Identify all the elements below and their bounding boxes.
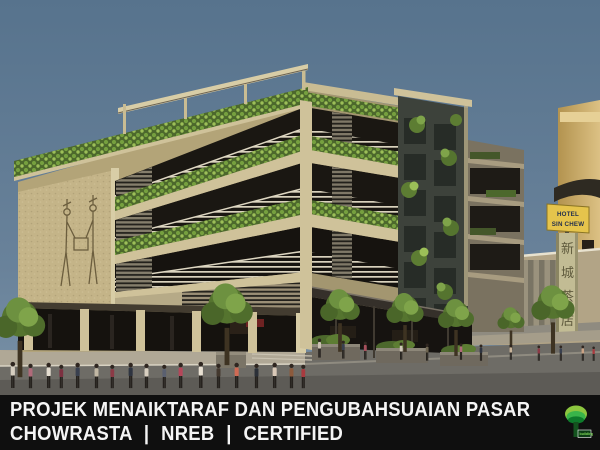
mural-wall [18, 168, 119, 308]
svg-text:城: 城 [561, 266, 574, 281]
hotel-sign-line1: HOTEL [557, 211, 579, 218]
architectural-rendering: HOTEL SIN CHEW 新 城 茶 店 [0, 0, 600, 450]
hotel-sign-line2: SIN CHEW [552, 221, 585, 228]
rendering-slide: HOTEL SIN CHEW 新 城 茶 店 [0, 0, 600, 450]
project-title-line1: PROJEK MENAIKTARAF DAN PENGUBAHSUAIAN PA… [10, 399, 530, 423]
louver-panels [332, 112, 352, 280]
logo-caption: building [580, 432, 594, 436]
louver-panels [116, 167, 152, 292]
corner-column [300, 100, 312, 350]
svg-text:新: 新 [561, 241, 574, 257]
green-building-logo: building [561, 403, 593, 445]
project-title-line2: CHOWRASTA | NREB | CERTIFIED [10, 423, 530, 447]
title-banner: PROJEK MENAIKTARAF DAN PENGUBAHSUAIAN PA… [0, 395, 600, 450]
rear-wing [468, 140, 524, 332]
